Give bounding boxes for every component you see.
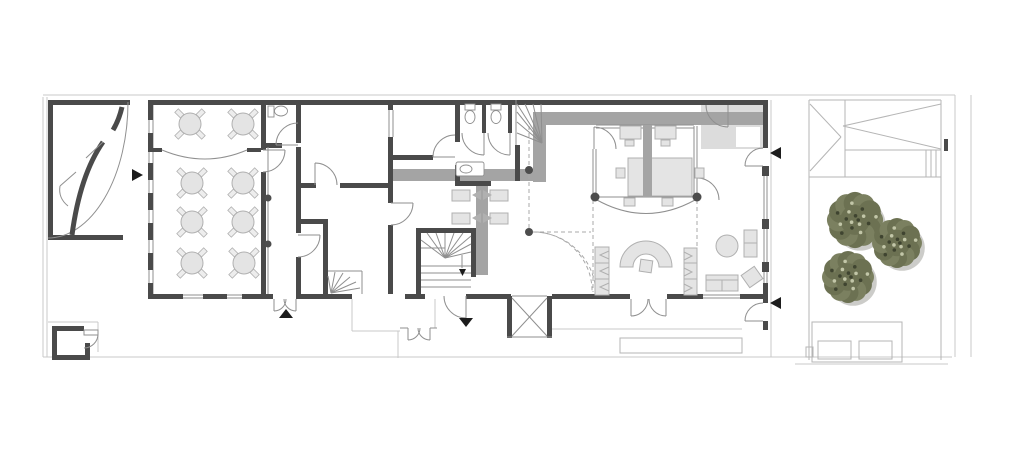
wall	[388, 225, 393, 294]
armchair	[639, 259, 653, 273]
toilet-bowl	[275, 106, 288, 116]
wall	[944, 139, 948, 151]
table-top	[232, 113, 254, 135]
wall	[296, 294, 352, 299]
curve	[60, 186, 68, 206]
wall	[85, 343, 90, 360]
stair-t	[427, 233, 445, 258]
roof-line	[843, 104, 941, 126]
wall	[416, 228, 476, 233]
dining-table	[229, 248, 259, 278]
courtyard-planters	[620, 322, 902, 362]
door-swing	[462, 133, 484, 155]
door-swing	[745, 303, 763, 321]
curve	[162, 150, 247, 159]
hatch-void	[736, 127, 760, 147]
dining-table	[177, 168, 207, 198]
dining-tables	[175, 109, 259, 278]
toilet-bowl	[465, 111, 475, 124]
band-over	[643, 125, 652, 197]
wall	[466, 294, 511, 299]
wall	[763, 100, 768, 148]
column	[693, 193, 702, 202]
wall	[471, 228, 476, 277]
wall	[455, 181, 491, 186]
wall	[148, 283, 153, 294]
table-top	[181, 211, 203, 233]
column	[591, 193, 600, 202]
roof-line	[810, 137, 841, 171]
band-segment	[533, 112, 766, 125]
band-spine	[643, 125, 652, 197]
desk	[452, 213, 470, 224]
wall	[296, 183, 316, 188]
planter	[812, 322, 902, 362]
toilet-bowl	[491, 111, 501, 124]
wall	[740, 294, 766, 299]
wall	[507, 296, 512, 338]
table-top	[181, 172, 203, 194]
toilet	[491, 104, 501, 124]
table-top	[181, 252, 203, 274]
wall	[416, 228, 421, 296]
wall	[552, 294, 630, 299]
desk	[624, 198, 635, 206]
door-swing	[276, 123, 298, 145]
wall	[296, 100, 301, 143]
wall	[52, 355, 90, 360]
wall	[52, 326, 57, 360]
partition-line	[60, 172, 76, 186]
lounge-round-table	[716, 235, 738, 257]
curved-wall	[72, 107, 122, 235]
wall	[148, 148, 162, 152]
dining-table	[175, 109, 205, 139]
wall	[340, 183, 388, 188]
rotated-furniture	[639, 259, 763, 288]
floor-plan	[0, 0, 1024, 463]
wall	[48, 100, 53, 240]
column	[265, 241, 272, 248]
wall	[515, 145, 520, 181]
column	[525, 166, 533, 174]
column	[265, 195, 272, 202]
wall	[203, 294, 227, 299]
wall	[482, 100, 486, 133]
door-swing	[315, 163, 337, 185]
entrance-arrow	[132, 169, 143, 181]
toilet-tank	[491, 104, 501, 110]
planter	[818, 341, 851, 359]
desk	[616, 168, 625, 178]
door-swing	[488, 133, 510, 155]
roof-line	[810, 104, 841, 137]
desk	[661, 140, 670, 146]
wall	[261, 172, 266, 294]
wall	[247, 148, 261, 152]
curve	[597, 200, 695, 214]
floor-plan-page	[0, 0, 1024, 463]
door-swing	[433, 135, 455, 157]
door-swing	[631, 299, 648, 316]
desk	[628, 158, 692, 196]
wall	[455, 100, 460, 142]
door-swing	[745, 148, 763, 166]
wall	[762, 262, 769, 272]
wall	[547, 296, 552, 338]
door-swing	[263, 150, 285, 172]
table-top	[232, 211, 254, 233]
dining-table	[177, 207, 207, 237]
wall	[261, 100, 266, 150]
desk	[625, 140, 634, 146]
table-top	[232, 172, 254, 194]
door-swing	[649, 299, 666, 316]
door-leaf-block	[84, 330, 98, 335]
wall	[388, 183, 393, 203]
wall	[762, 219, 769, 229]
thin-partition-lines	[60, 100, 697, 337]
washbasin	[456, 162, 484, 176]
dining-table	[228, 168, 258, 198]
entrance-arrow	[459, 318, 473, 327]
toilet-tank	[465, 104, 475, 110]
wall	[762, 166, 769, 176]
wall	[148, 163, 153, 180]
armchair	[741, 266, 763, 287]
wall	[296, 257, 301, 294]
dining-table	[177, 248, 207, 278]
toilet-tank	[268, 106, 274, 117]
desk	[490, 190, 508, 201]
desk	[620, 126, 641, 139]
wall	[48, 100, 130, 105]
wall	[148, 223, 153, 240]
dashed-curve	[537, 232, 592, 293]
entrance-arrow	[770, 147, 781, 159]
wall	[763, 283, 768, 303]
door-swing	[391, 203, 413, 225]
dining-table	[228, 109, 258, 139]
wall	[508, 100, 512, 133]
wall	[148, 193, 153, 210]
desk	[695, 168, 704, 178]
wall	[763, 321, 768, 330]
door-swing	[594, 127, 616, 149]
round-table	[716, 235, 738, 257]
desk	[662, 198, 673, 206]
wall	[148, 294, 183, 299]
wall	[48, 235, 123, 240]
toilet	[268, 106, 288, 117]
desk	[490, 213, 508, 224]
table-top	[179, 113, 201, 135]
roof-line	[843, 126, 941, 149]
column	[525, 228, 533, 236]
wall	[148, 133, 153, 150]
door-leaf-blocks	[84, 330, 98, 335]
door-swing	[298, 235, 320, 257]
wall	[148, 105, 153, 120]
courtyard-trees	[822, 192, 925, 306]
mezzanine-hatch-void	[736, 127, 760, 147]
wall	[148, 253, 153, 270]
tree	[822, 251, 877, 306]
desk	[655, 126, 676, 139]
door-swing	[444, 296, 466, 318]
desk	[452, 190, 470, 201]
toilet	[465, 104, 475, 124]
wall	[323, 219, 328, 294]
sink	[456, 162, 484, 176]
wall	[391, 155, 433, 160]
wall	[388, 100, 393, 110]
planter	[859, 341, 892, 359]
sink-basin	[460, 165, 472, 173]
toilets	[268, 104, 501, 124]
wall	[242, 294, 273, 299]
dining-table	[228, 207, 258, 237]
stair-t	[328, 276, 331, 293]
table-top	[233, 252, 255, 274]
curved-wall	[113, 107, 122, 130]
wall	[405, 294, 425, 299]
dashed-curves	[533, 232, 596, 295]
entrance-arrow	[770, 297, 781, 309]
planter	[620, 338, 742, 353]
